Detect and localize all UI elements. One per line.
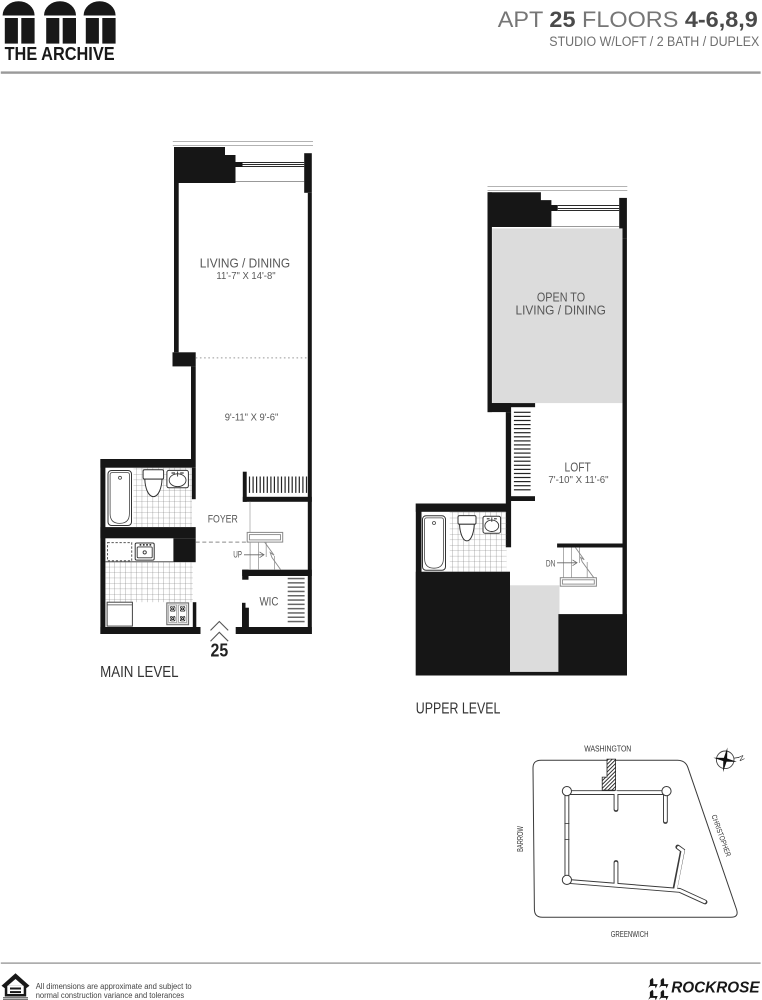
- svg-text:25: 25: [211, 640, 229, 660]
- svg-text:9'-11" X 9'-6": 9'-11" X 9'-6": [225, 412, 279, 423]
- svg-text:MAIN LEVEL: MAIN LEVEL: [100, 664, 179, 681]
- svg-text:UPPER LEVEL: UPPER LEVEL: [416, 701, 501, 718]
- svg-text:UP: UP: [233, 550, 242, 560]
- svg-text:All dimensions are approximate: All dimensions are approximate and subje…: [36, 982, 193, 991]
- svg-text:LOFT: LOFT: [565, 460, 591, 475]
- svg-text:FOYER: FOYER: [208, 513, 238, 525]
- svg-text:LIVING / DINING: LIVING / DINING: [516, 304, 606, 318]
- svg-text:STUDIO W/LOFT / 2 BATH / DUPLE: STUDIO W/LOFT / 2 BATH / DUPLEX: [549, 34, 759, 49]
- svg-text:LIVING / DINING: LIVING / DINING: [200, 256, 290, 270]
- svg-text:ROCKROSE: ROCKROSE: [671, 979, 761, 996]
- svg-text:7'-10" X 11'-6": 7'-10" X 11'-6": [548, 475, 608, 486]
- svg-text:APT 25 FLOORS 4-6,8,9: APT 25 FLOORS 4-6,8,9: [498, 7, 758, 32]
- svg-text:DN: DN: [546, 558, 556, 568]
- svg-text:THE ARCHIVE: THE ARCHIVE: [5, 44, 115, 64]
- svg-text:WIC: WIC: [260, 595, 279, 609]
- svg-text:GREENWICH: GREENWICH: [611, 930, 649, 939]
- svg-text:OPEN TO: OPEN TO: [537, 290, 585, 304]
- svg-text:normal construction variance a: normal construction variance and toleran…: [36, 991, 185, 1000]
- svg-text:11'-7" X 14'-8": 11'-7" X 14'-8": [216, 271, 275, 282]
- svg-text:WASHINGTON: WASHINGTON: [584, 744, 631, 753]
- svg-text:BARROW: BARROW: [516, 826, 525, 852]
